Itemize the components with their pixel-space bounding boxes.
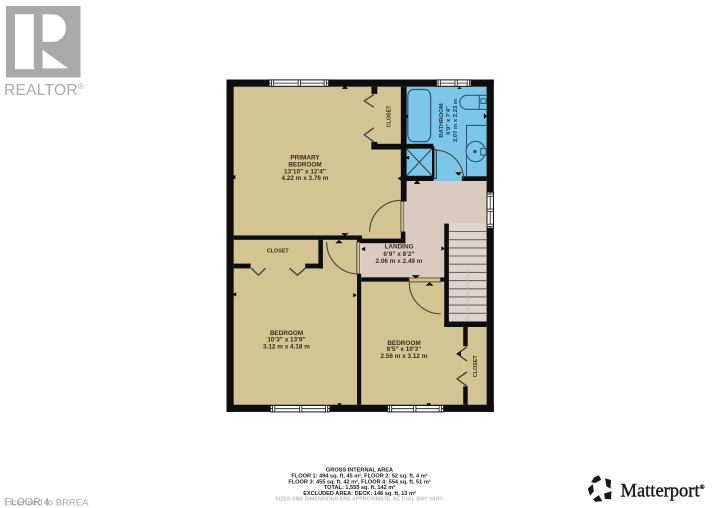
svg-text:2.56 m x 3.12 m: 2.56 m x 3.12 m — [381, 353, 428, 360]
svg-text:Matterport®: Matterport® — [621, 481, 705, 501]
svg-text:REALTOR®: REALTOR® — [4, 82, 84, 99]
svg-text:2.07 m x 2.23 m: 2.07 m x 2.23 m — [453, 99, 459, 142]
svg-text:Licensed to BRREA: Licensed to BRREA — [5, 498, 90, 508]
svg-text:BATHROOM: BATHROOM — [439, 103, 445, 137]
svg-text:LANDING: LANDING — [384, 243, 413, 250]
svg-text:SIZES AND DIMENSIONS ARE APPRO: SIZES AND DIMENSIONS ARE APPROXIMATE, AC… — [275, 497, 444, 503]
svg-text:CLOSET: CLOSET — [386, 105, 392, 128]
svg-text:CLOSET: CLOSET — [267, 249, 290, 255]
svg-text:2.06 m x 2.49 m: 2.06 m x 2.49 m — [376, 258, 423, 265]
svg-text:6’9” x 7’4”: 6’9” x 7’4” — [446, 106, 452, 135]
svg-text:3.12 m x 4.18 m: 3.12 m x 4.18 m — [263, 344, 310, 351]
svg-text:CLOSET: CLOSET — [473, 355, 479, 378]
svg-text:10’3” x 13’9”: 10’3” x 13’9” — [267, 337, 305, 344]
svg-text:FLOOR 1: 494 sq. ft, 45 m², FL: FLOOR 1: 494 sq. ft, 45 m², FLOOR 2: 52 … — [291, 472, 427, 479]
svg-text:4.22 m x 3.76 m: 4.22 m x 3.76 m — [282, 175, 329, 182]
